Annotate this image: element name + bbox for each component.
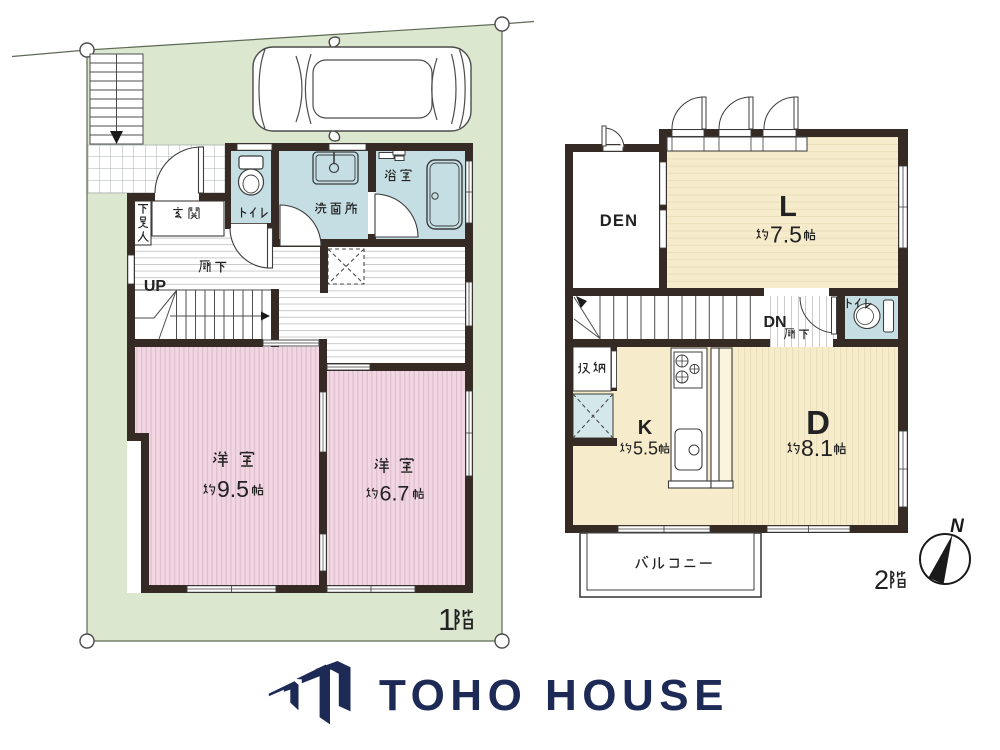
svg-text:DEN: DEN xyxy=(600,212,638,230)
svg-text:TOHO HOUSE: TOHO HOUSE xyxy=(379,671,729,720)
svg-text:8.1: 8.1 xyxy=(801,435,833,461)
svg-text:7.5: 7.5 xyxy=(770,222,802,248)
svg-text:2: 2 xyxy=(874,565,889,595)
svg-text:6.7: 6.7 xyxy=(380,482,410,506)
svg-text:5.5: 5.5 xyxy=(633,439,658,459)
svg-text:UP: UP xyxy=(144,278,167,295)
svg-text:K: K xyxy=(638,417,653,439)
svg-text:N: N xyxy=(950,516,965,537)
svg-text:1: 1 xyxy=(438,602,455,637)
svg-text:L: L xyxy=(779,191,797,223)
svg-text:9.5: 9.5 xyxy=(217,476,249,502)
svg-text:DN: DN xyxy=(763,314,786,331)
